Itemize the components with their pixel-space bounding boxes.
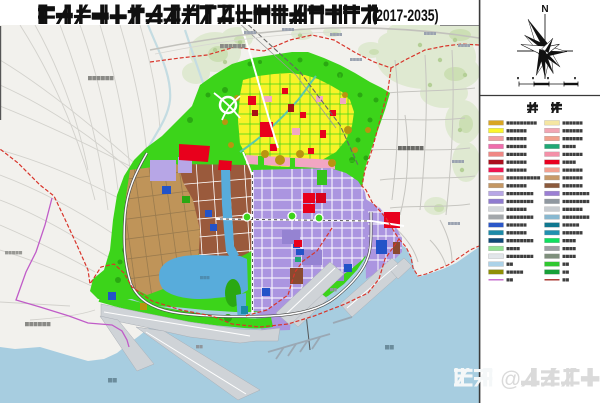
svg-text:N: N [541,4,548,15]
svg-text:(2017-2035): (2017-2035) [372,7,439,25]
svg-text:@: @ [500,368,521,391]
